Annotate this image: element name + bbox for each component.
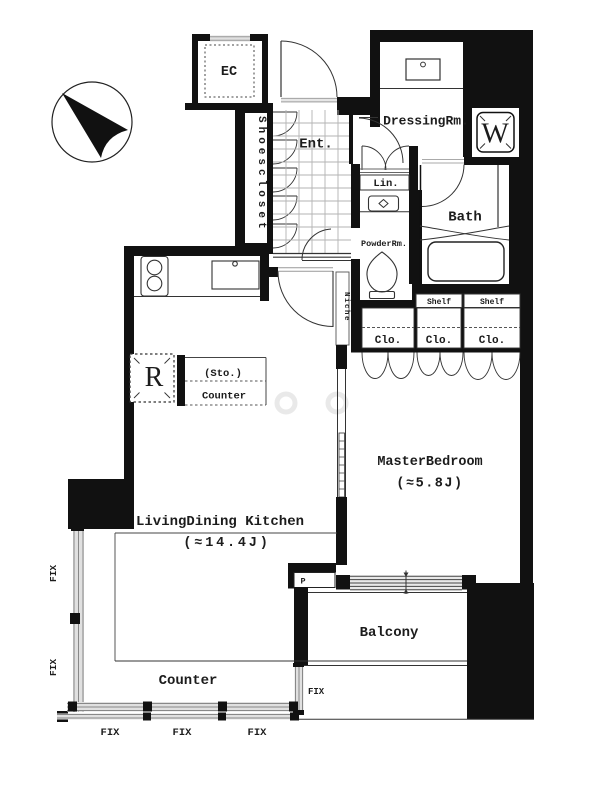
svg-text:Clo.: Clo.	[375, 335, 401, 347]
svg-text:Counter: Counter	[159, 673, 218, 689]
svg-text:FIX: FIX	[308, 687, 325, 697]
svg-text:FIX: FIX	[101, 727, 121, 739]
svg-text:FIX: FIX	[48, 565, 59, 582]
svg-text:Clo.: Clo.	[479, 335, 505, 347]
svg-text:P: P	[300, 577, 305, 587]
svg-text:Bath: Bath	[448, 210, 482, 226]
svg-text:FIX: FIX	[48, 659, 59, 676]
svg-text:FIX: FIX	[248, 727, 268, 739]
svg-text:Balcony: Balcony	[360, 625, 419, 641]
svg-text:Shoescloset: Shoescloset	[255, 116, 267, 233]
svg-text:R: R	[145, 362, 164, 393]
svg-text:MasterBedroom: MasterBedroom	[377, 455, 482, 470]
svg-text:Lin.: Lin.	[373, 178, 398, 190]
svg-text:Niche: Niche	[342, 292, 350, 322]
svg-text:Counter: Counter	[202, 391, 246, 403]
svg-text:Shelf: Shelf	[427, 298, 451, 307]
svg-text:Clo.: Clo.	[426, 335, 452, 347]
svg-text:PowderRm.: PowderRm.	[361, 239, 407, 249]
svg-text:Shelf: Shelf	[480, 298, 504, 307]
svg-text:DressingRm.: DressingRm.	[383, 114, 469, 129]
svg-text:LivingDining Kitchen: LivingDining Kitchen	[136, 514, 304, 530]
svg-text:(≈5.8J): (≈5.8J)	[396, 477, 463, 492]
svg-text:(Sto.): (Sto.)	[204, 368, 242, 380]
svg-text:FIX: FIX	[173, 727, 193, 739]
svg-text:Ent.: Ent.	[299, 137, 333, 153]
svg-text:(≈14.4J): (≈14.4J)	[183, 536, 270, 551]
svg-text:EC: EC	[221, 65, 237, 80]
svg-text:W: W	[481, 118, 509, 150]
